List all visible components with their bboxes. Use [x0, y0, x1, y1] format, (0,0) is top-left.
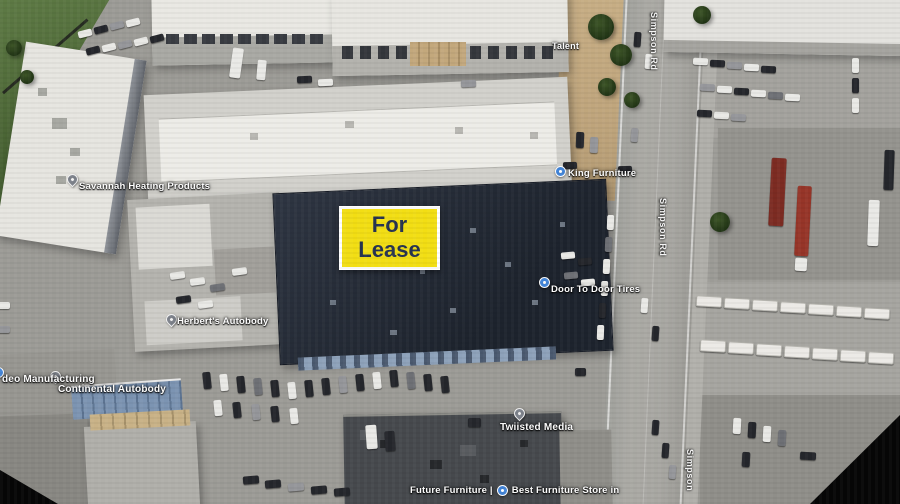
- vehicle: [461, 80, 476, 88]
- trailer: [696, 295, 723, 307]
- poi-dot-icon[interactable]: [497, 485, 508, 496]
- vehicle: [355, 374, 365, 392]
- vehicle: [697, 110, 712, 118]
- poi-dot-icon[interactable]: [555, 166, 566, 177]
- roof-detail: [330, 300, 336, 305]
- roof-detail: [505, 262, 511, 267]
- roof-detail: [292, 34, 305, 44]
- for-lease-line1: For: [372, 213, 407, 238]
- trailer: [812, 347, 839, 360]
- vehicle: [365, 425, 378, 450]
- roof-detail: [274, 34, 287, 44]
- roof-detail: [238, 34, 251, 44]
- vehicle: [693, 58, 708, 66]
- vehicle: [714, 112, 729, 120]
- roof-detail: [450, 308, 456, 313]
- roof-detail: [455, 127, 463, 134]
- vehicle: [468, 418, 481, 427]
- vehicle: [727, 62, 742, 70]
- roof-detail: [390, 330, 397, 335]
- vehicle: [243, 475, 260, 484]
- trailer: [840, 349, 867, 362]
- vehicle: [867, 200, 880, 246]
- vehicle: [700, 84, 715, 92]
- vehicle: [651, 420, 659, 435]
- roof-detail: [520, 440, 528, 447]
- roof-detail: [460, 445, 476, 456]
- vehicle: [748, 422, 757, 438]
- place-label-text: Future Furniture |: [410, 485, 493, 496]
- vehicle: [761, 66, 776, 74]
- roof-detail: [420, 270, 425, 274]
- road-label-text: Simpson: [685, 449, 695, 491]
- map-canvas[interactable]: For Lease Savannah Heating Products Herb…: [0, 0, 900, 504]
- roof-detail: [184, 34, 197, 44]
- vehicle: [202, 372, 212, 390]
- roof-detail: [202, 34, 215, 44]
- vehicle: [717, 86, 732, 94]
- vehicle: [852, 78, 859, 93]
- tree: [6, 40, 22, 56]
- place-label-king-furniture[interactable]: King Furniture: [568, 168, 636, 179]
- vehicle: [288, 482, 305, 491]
- roof-detail: [480, 475, 489, 483]
- vehicle: [384, 431, 395, 452]
- vehicle: [733, 418, 742, 434]
- place-label-twiisted[interactable]: Twiisted Media: [500, 422, 573, 433]
- roof-detail: [524, 46, 535, 59]
- vehicle: [631, 128, 639, 142]
- place-label-text: Talent: [552, 41, 579, 51]
- roof-detail: [342, 46, 353, 59]
- place-label-continental[interactable]: Continental Autobody: [58, 384, 166, 395]
- vehicle: [800, 452, 816, 461]
- vehicle: [334, 487, 351, 496]
- vehicle: [734, 88, 749, 96]
- roof-detail: [345, 121, 354, 128]
- roof-detail: [220, 34, 233, 44]
- vehicle: [883, 150, 894, 190]
- vehicle: [289, 408, 299, 425]
- road-label-text: Simpson Rd: [649, 12, 659, 71]
- trailer: [756, 343, 783, 356]
- trailer: [780, 301, 807, 313]
- trailer: [836, 305, 863, 317]
- vehicle: [852, 58, 859, 73]
- vehicle: [304, 380, 314, 398]
- road-label-simpson-bottom[interactable]: Simpson: [685, 449, 695, 491]
- tree: [710, 212, 730, 232]
- vehicle: [599, 303, 607, 318]
- place-label-door-to-door[interactable]: Door To Door Tires: [551, 284, 640, 295]
- roof-detail: [560, 222, 565, 227]
- vehicle: [338, 376, 348, 394]
- roof-detail: [530, 132, 538, 139]
- place-label-text: Continental Autobody: [58, 384, 166, 395]
- place-label-herberts[interactable]: Herbert's Autobody: [177, 316, 269, 327]
- roof-detail: [250, 133, 258, 140]
- vehicle: [321, 378, 331, 396]
- vehicle: [389, 370, 399, 388]
- vehicle: [651, 326, 659, 341]
- place-label-text: Best Furniture Store in: [512, 485, 620, 496]
- place-label-savannah[interactable]: Savannah Heating Products: [79, 181, 210, 192]
- vehicle: [795, 258, 808, 272]
- vehicle: [440, 376, 450, 394]
- tree: [598, 78, 616, 96]
- vehicle: [219, 374, 229, 392]
- vehicle: [669, 465, 677, 479]
- vehicle: [561, 251, 576, 259]
- roof-detail: [378, 46, 389, 59]
- vehicle: [0, 302, 10, 309]
- vehicle: [576, 132, 585, 148]
- vehicle: [640, 298, 648, 313]
- vehicle: [133, 36, 148, 46]
- vehicle: [236, 376, 246, 394]
- trailer: [868, 351, 895, 364]
- roof-detail: [470, 46, 481, 59]
- vehicle: [607, 215, 615, 230]
- vehicle: [763, 426, 772, 442]
- roof-detail: [38, 88, 47, 96]
- vehicle: [406, 372, 416, 390]
- vehicle: [778, 430, 787, 446]
- for-lease-sign: For Lease: [339, 206, 440, 270]
- vehicle: [710, 60, 725, 68]
- tree: [693, 6, 711, 24]
- vehicle: [578, 257, 593, 265]
- vehicle: [731, 114, 746, 122]
- roof-detail: [430, 460, 442, 469]
- vehicle: [633, 32, 641, 47]
- vehicle: [297, 76, 312, 84]
- building-cluster-left-mid: [127, 192, 287, 352]
- roof-detail: [506, 46, 517, 59]
- building-dark-roof-for-lease: [272, 179, 613, 365]
- vehicle: [372, 372, 382, 390]
- vehicle: [590, 137, 599, 153]
- vehicle: [311, 485, 328, 494]
- vehicle: [785, 94, 800, 102]
- roof-detail: [52, 118, 67, 129]
- trailer: [724, 297, 751, 309]
- small-roof-1: [136, 204, 213, 270]
- place-label-future-furniture[interactable]: Future Furniture | Best Furniture Store …: [410, 485, 619, 496]
- vehicle: [287, 382, 297, 400]
- pallet-stacks: [410, 42, 466, 66]
- vehicle: [101, 42, 116, 52]
- place-label-text: Herbert's Autobody: [177, 316, 269, 327]
- vehicle: [253, 378, 263, 396]
- tree: [20, 70, 34, 84]
- vehicle: [265, 479, 282, 488]
- vehicle: [318, 79, 333, 87]
- vehicle: [125, 17, 140, 27]
- place-label-talent[interactable]: Talent: [552, 41, 579, 51]
- roof-detail: [256, 34, 269, 44]
- vehicle: [751, 90, 766, 98]
- vehicle: [93, 24, 108, 34]
- place-label-text: King Furniture: [568, 168, 636, 179]
- vehicle: [0, 326, 10, 333]
- poi-dot-icon[interactable]: [539, 277, 550, 288]
- vehicle: [597, 325, 605, 340]
- roof-detail: [532, 300, 538, 305]
- roof-detail: [396, 46, 407, 59]
- vehicle: [117, 39, 132, 49]
- trailer: [752, 299, 779, 311]
- vehicle: [423, 374, 433, 392]
- vehicle: [232, 402, 242, 419]
- roof-ridge: [159, 101, 557, 182]
- trailer: [864, 307, 891, 319]
- vehicle: [852, 98, 859, 113]
- place-label-text: Twiisted Media: [500, 422, 573, 433]
- vehicle: [768, 92, 783, 100]
- vehicle: [564, 271, 579, 279]
- road-label-simpson-rd-middle[interactable]: Simpson Rd: [658, 198, 668, 257]
- tree: [610, 44, 632, 66]
- tree: [588, 14, 614, 40]
- vehicle: [661, 443, 669, 458]
- trailer: [728, 341, 755, 354]
- roof-detail: [310, 34, 323, 44]
- roof-detail: [166, 34, 179, 44]
- vehicle: [744, 64, 759, 72]
- vehicle: [256, 60, 267, 81]
- tree: [624, 92, 640, 108]
- vehicle: [603, 259, 611, 274]
- road-label-text: Simpson Rd: [658, 198, 668, 257]
- trailer: [784, 345, 811, 358]
- vehicle: [251, 404, 261, 421]
- trailer: [808, 303, 835, 315]
- vehicle: [270, 380, 280, 398]
- roof-detail: [70, 148, 80, 156]
- vehicle: [605, 237, 613, 252]
- roof-detail: [56, 176, 66, 184]
- vehicle: [575, 368, 586, 376]
- place-label-text: Door To Door Tires: [551, 284, 640, 295]
- trailer: [700, 339, 727, 352]
- for-lease-line2: Lease: [358, 238, 420, 263]
- road-label-simpson-rd-top[interactable]: Simpson Rd: [649, 12, 659, 71]
- place-label-text: Savannah Heating Products: [79, 181, 210, 192]
- roof-detail: [360, 46, 371, 59]
- vehicle: [742, 452, 751, 467]
- vehicle: [213, 400, 223, 417]
- roof-detail: [488, 46, 499, 59]
- vehicle: [270, 406, 280, 423]
- building-bottom-left-c: [84, 421, 200, 504]
- vehicle: [109, 20, 124, 30]
- roof-detail: [470, 228, 476, 233]
